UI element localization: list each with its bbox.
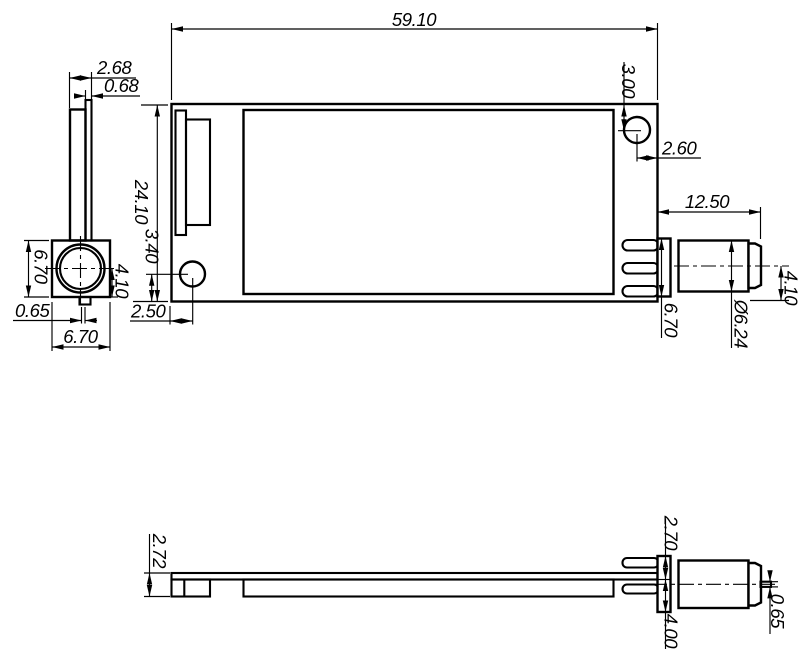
sma-leg-top <box>623 240 659 251</box>
dim-hole-tr-right-label: 2.60 <box>661 138 698 159</box>
dim-board-thickness: 0.68 <box>74 75 140 99</box>
dimension-drawing-canvas: 59.10 24.10 3.40 2.50 3.00 <box>0 0 803 653</box>
dim-front-width-label: 59.10 <box>392 9 437 30</box>
dim-connector-height: 6.70 <box>24 241 52 298</box>
shield-can <box>244 110 614 294</box>
dim-connector-above-label: 2.70 <box>661 515 682 552</box>
dim-connector-height-label: 6.70 <box>31 249 52 285</box>
dim-pin-diameter-bottom: 0.65 <box>763 571 788 634</box>
dim-total-thickness-label: 2.72 <box>149 533 170 570</box>
dim-sma-thread-label: Ø6.24 <box>731 299 752 349</box>
dim-front-height: 24.10 <box>131 105 168 302</box>
sma-leg-bottom <box>623 286 659 297</box>
sma-leg-middle <box>623 263 659 274</box>
shield-edge <box>86 100 92 241</box>
dim-axis-to-bottom-label: 4.10 <box>112 264 133 300</box>
left-side-view: 2.68 0.68 6.70 0.65 6 <box>13 57 140 351</box>
shield-side <box>244 580 614 597</box>
technical-drawing-page: 59.10 24.10 3.40 2.50 3.00 <box>0 0 803 653</box>
dim-connector-below-label: 4.00 <box>661 614 682 650</box>
dim-connector-width-label: 6.70 <box>63 326 99 347</box>
sma-leg-upper-side <box>623 558 659 568</box>
dim-hole-bl-from-bottom: 3.40 <box>142 229 189 302</box>
sma-leg-lower-side <box>623 585 659 594</box>
dim-total-thickness: 2.72 <box>144 533 170 597</box>
dim-hole-bl-bottom-label: 3.40 <box>142 229 163 265</box>
edge-connector-flange <box>176 111 187 236</box>
dim-board-thickness-label: 0.68 <box>104 75 140 96</box>
dim-front-height-label: 24.10 <box>131 179 152 225</box>
pcb-edge <box>70 110 86 241</box>
dim-sma-length: 12.50 <box>658 191 761 239</box>
sma-flange <box>658 239 671 297</box>
dim-hole-bl-left-label: 2.50 <box>130 301 167 322</box>
dim-sma-flange-label: 6.70 <box>661 303 682 339</box>
dim-front-width: 59.10 <box>172 9 658 100</box>
front-view: 59.10 24.10 3.40 2.50 3.00 <box>130 9 802 348</box>
edge-connector-body <box>186 120 210 226</box>
dim-pin-diameter-left-label: 0.65 <box>15 300 51 321</box>
dim-sma-axis-offset-label: 4.10 <box>781 271 802 307</box>
dim-sma-length-label: 12.50 <box>685 191 730 212</box>
dim-axis-to-bottom: 4.10 <box>110 264 133 300</box>
dim-pin-diameter-bottom-label: 0.65 <box>767 594 788 630</box>
dim-hole-tr-top-label: 3.00 <box>618 64 639 100</box>
bottom-view: 2.72 2.70 4.00 0.65 <box>144 515 788 650</box>
edge-connector-side <box>172 580 211 597</box>
